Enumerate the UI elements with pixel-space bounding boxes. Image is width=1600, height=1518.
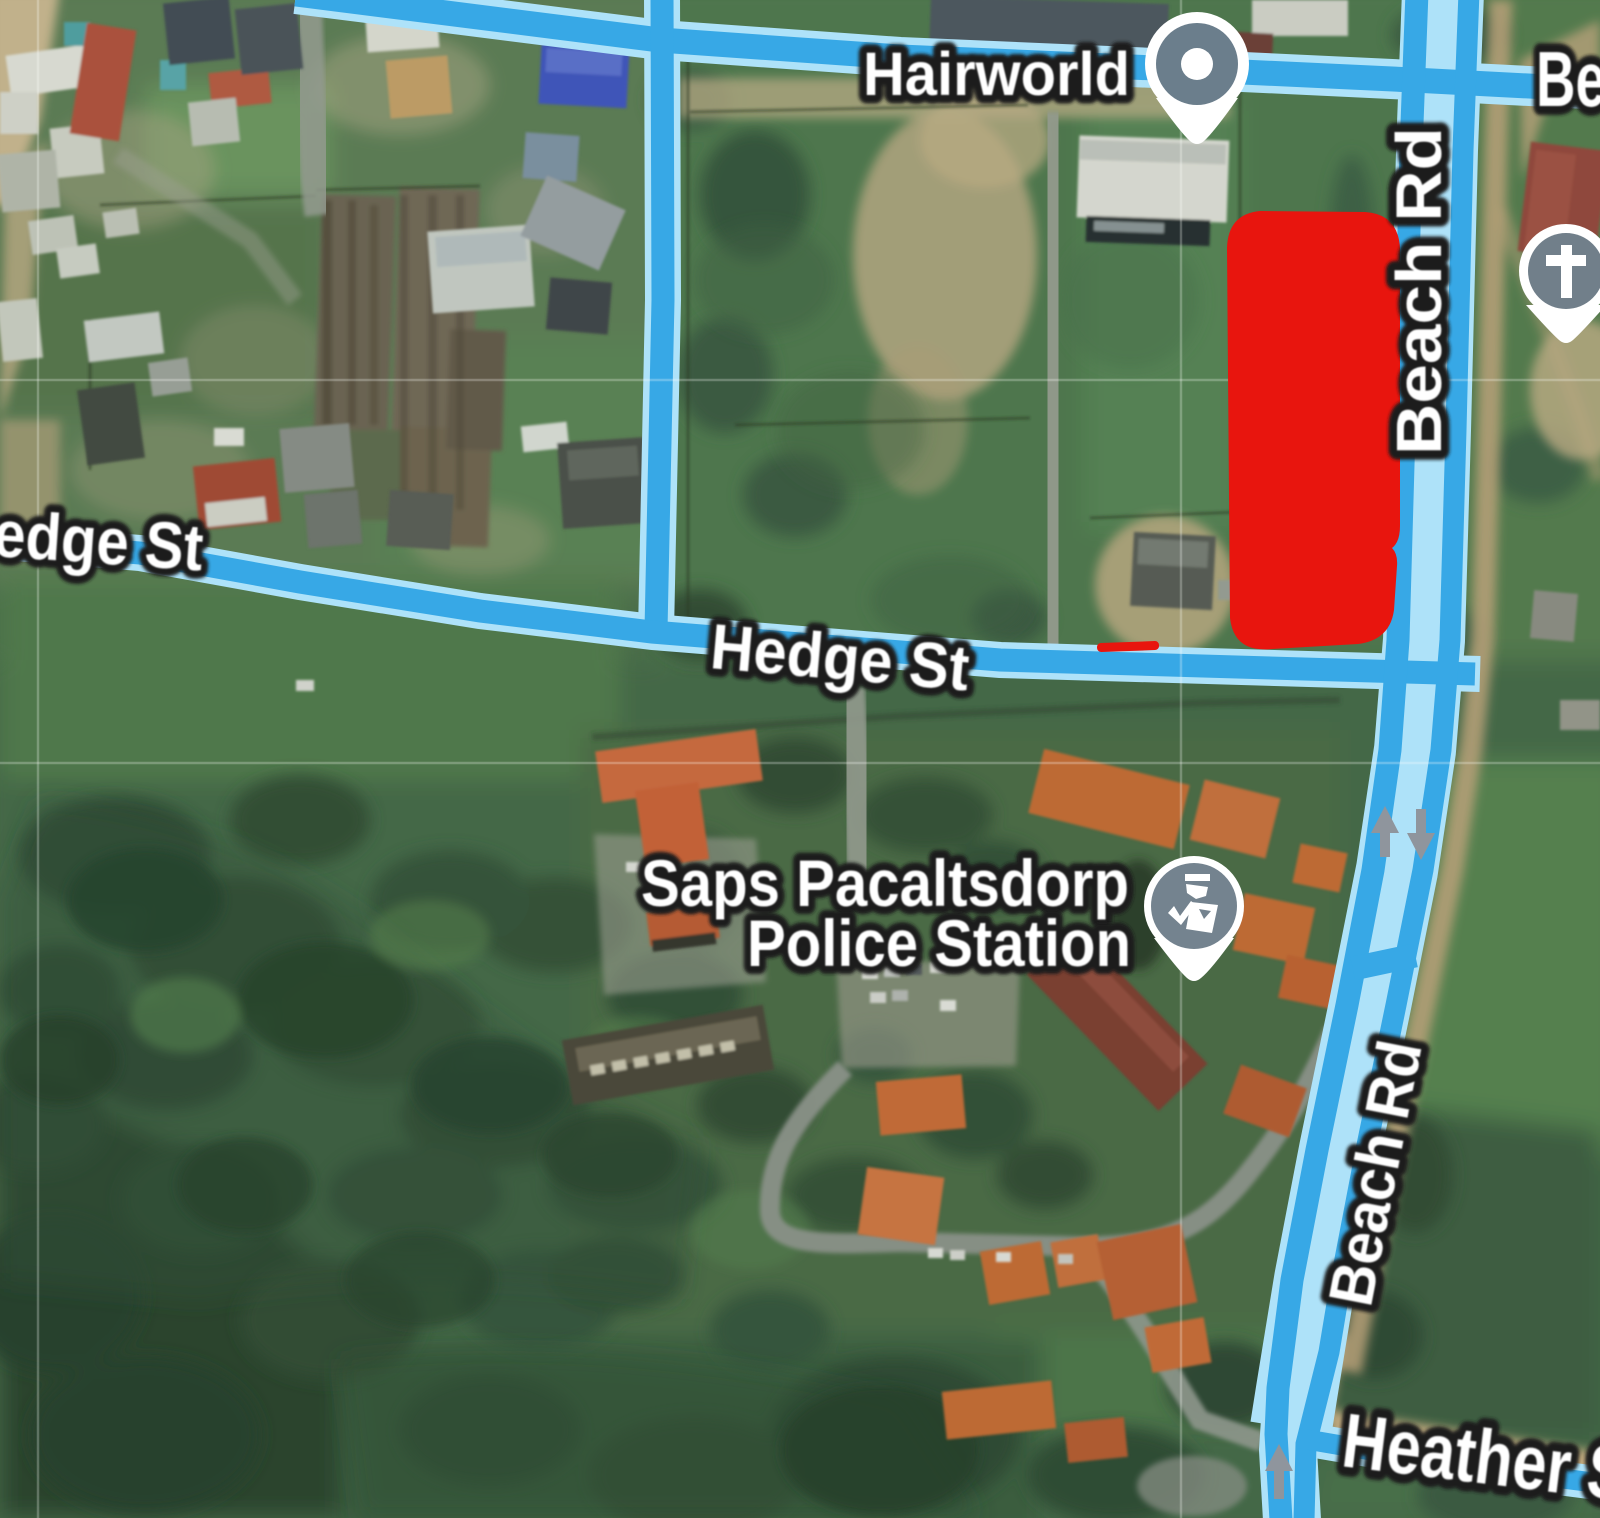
svg-text:edge St: edge St (0, 496, 206, 584)
svg-text:Police Station: Police Station (747, 906, 1131, 980)
svg-text:Hairworld: Hairworld (863, 40, 1130, 108)
svg-text:Beach Rd: Beach Rd (1383, 127, 1455, 455)
svg-text:Beach Rd: Beach Rd (1536, 35, 1600, 123)
